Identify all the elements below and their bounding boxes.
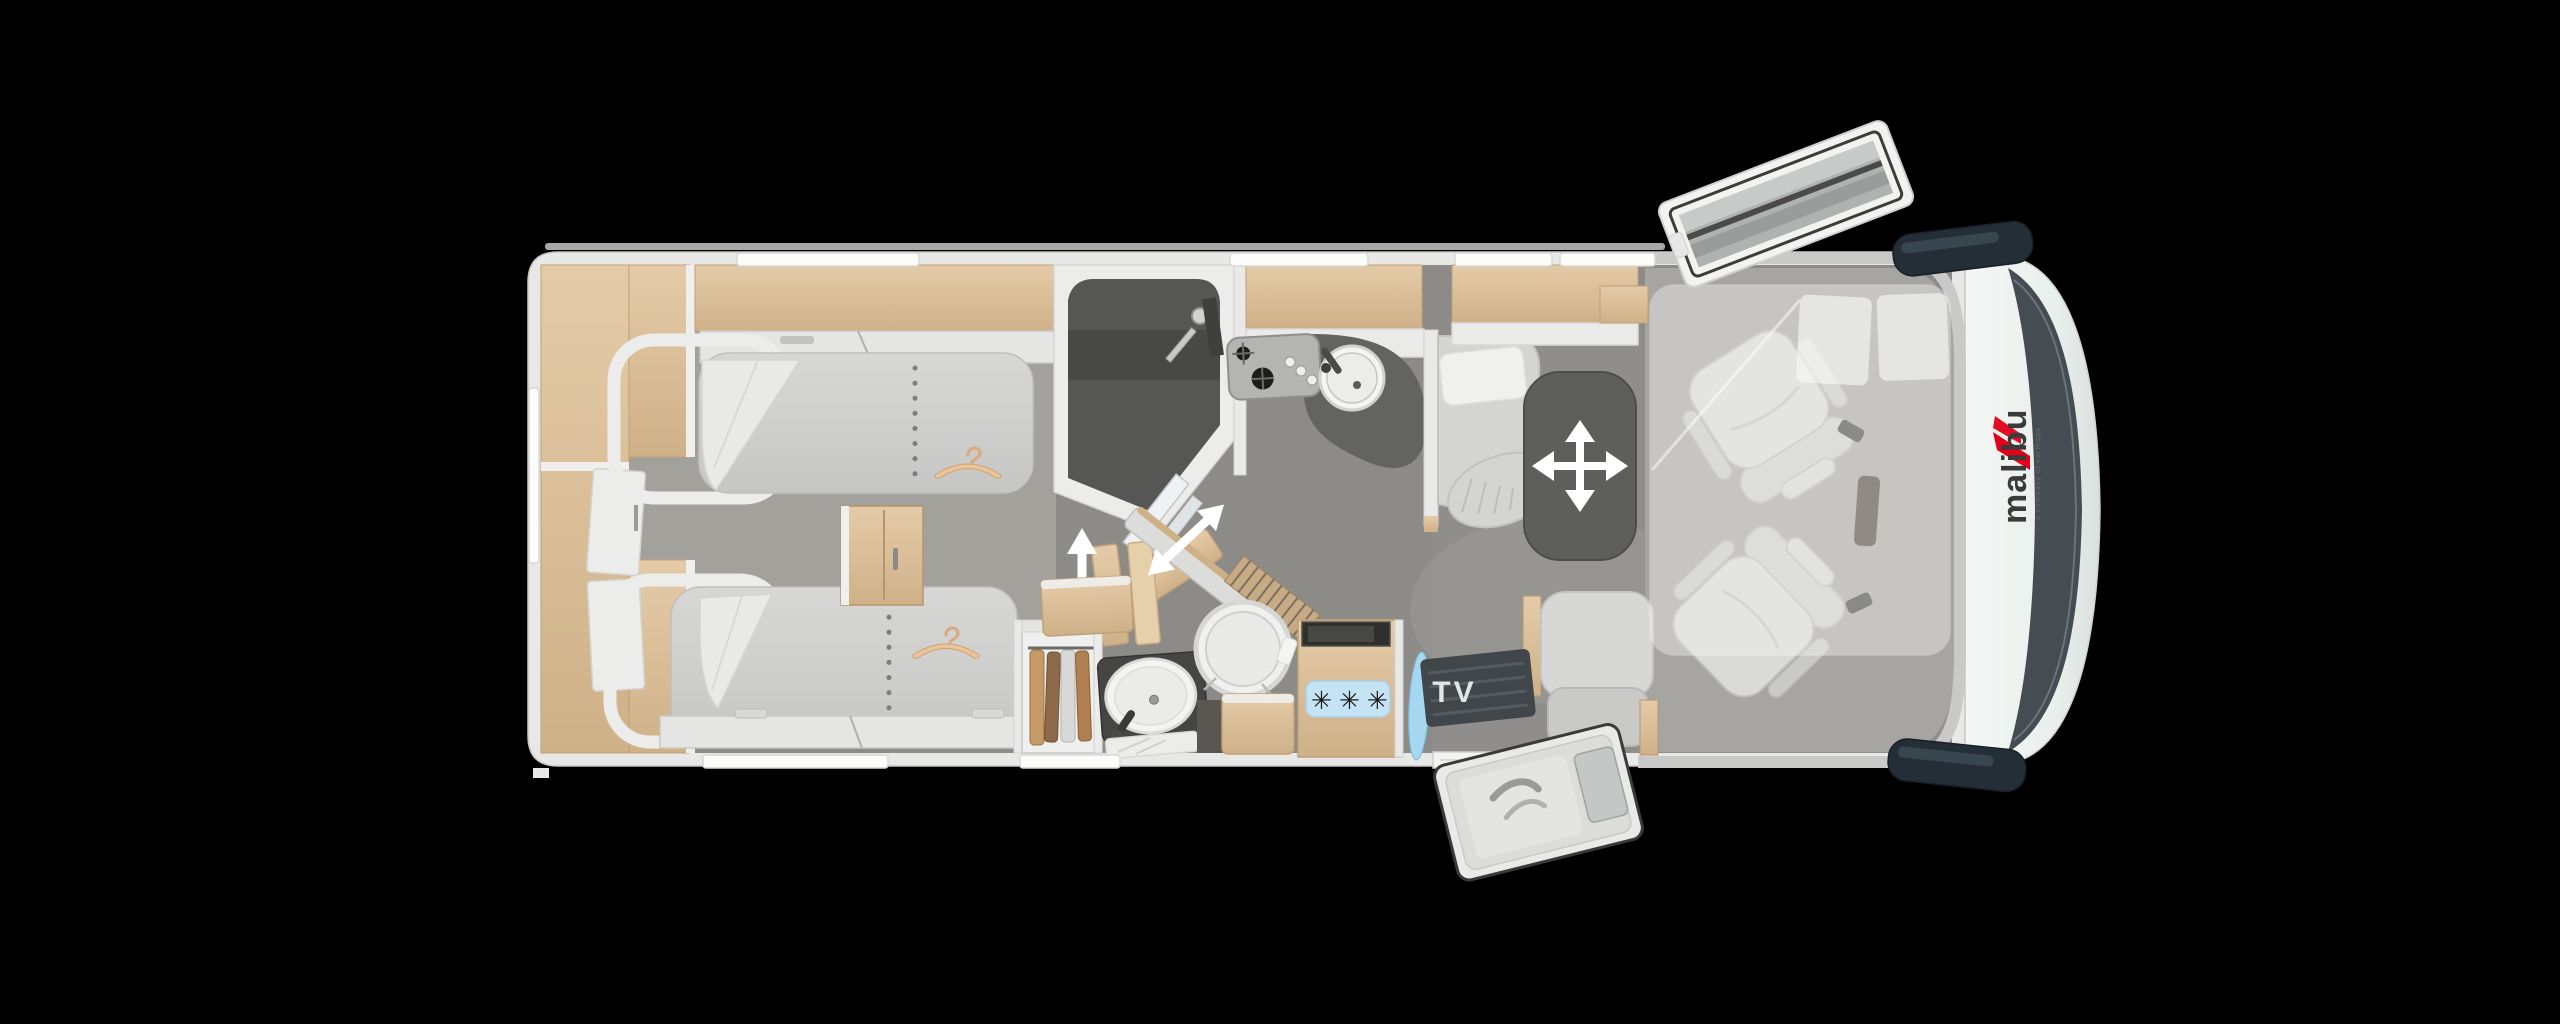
vanity: [1097, 651, 1209, 744]
window-strip-top-1: [737, 253, 919, 266]
locker-flaps-bottom: [660, 716, 1016, 748]
window-strip-bottom-2: [1020, 755, 1120, 768]
pod-step-edge: [1222, 694, 1294, 703]
pod-dark-floor: [1197, 700, 1223, 753]
shower-bench: [1068, 330, 1220, 380]
motorhome-floorplan: ✳✳✳ TV: [0, 0, 2560, 1024]
bed-pillow-1: [1796, 294, 1873, 386]
window-strip-top-2: [1230, 253, 1368, 266]
kitchen-lockers: [1246, 265, 1422, 329]
kitchen-sink: [1320, 346, 1384, 410]
bed-pillow-2: [1877, 293, 1950, 381]
chest-edge: [841, 506, 849, 605]
flap-handle-4: [972, 709, 1004, 718]
window-strip-top-4: [1560, 253, 1655, 266]
wardrobe: [1022, 620, 1102, 753]
sofa-partition-wall: [1424, 330, 1438, 526]
sideboard-counter: [1452, 323, 1638, 345]
sideboard-ledge: [1600, 286, 1648, 323]
bedside-chest: [841, 506, 923, 605]
fridge-side-panel: [1395, 620, 1403, 757]
seat-cushion: [1541, 592, 1653, 698]
sofa-pillow: [1439, 346, 1528, 406]
rear-window: [529, 388, 539, 563]
hanging-clothes: [1030, 650, 1092, 745]
logo-text: malibu: [1996, 408, 2034, 524]
pod-inner: [1206, 612, 1280, 686]
window-strip-top-3: [1455, 253, 1552, 266]
tv-label: TV: [1432, 676, 1476, 709]
floorplan-canvas: ✳✳✳ TV: [0, 0, 2560, 1024]
shelf-edge-top: [686, 265, 695, 457]
snowflakes-label: ✳✳✳: [1311, 687, 1395, 715]
tv-panel: TV: [1420, 648, 1537, 727]
cabinet-handle: [634, 505, 638, 531]
sink-drain: [1353, 381, 1361, 389]
rear-shelf-corner-top: [629, 265, 689, 457]
seat-wood-trim: [1640, 700, 1658, 755]
step-marker: [533, 768, 549, 778]
flap-handle-1: [780, 336, 814, 344]
window-strip-bottom-1: [703, 755, 888, 768]
partition-wood-cap: [1424, 516, 1438, 532]
drop-down-bed-overlay: [1650, 285, 1950, 655]
fridge-cabinet: ✳✳✳: [1298, 620, 1403, 757]
basin-drain: [1149, 695, 1159, 705]
round-pod: [1196, 602, 1298, 754]
kitchen-hob: [1226, 334, 1321, 401]
chest-handle: [893, 548, 898, 570]
cab-seating: [1650, 285, 1950, 720]
awning-rail: [545, 243, 1665, 250]
flap-handle-3: [735, 709, 767, 718]
oven-glass: [1308, 626, 1374, 642]
logo-tagline: a company of carthago: [2033, 427, 2042, 520]
